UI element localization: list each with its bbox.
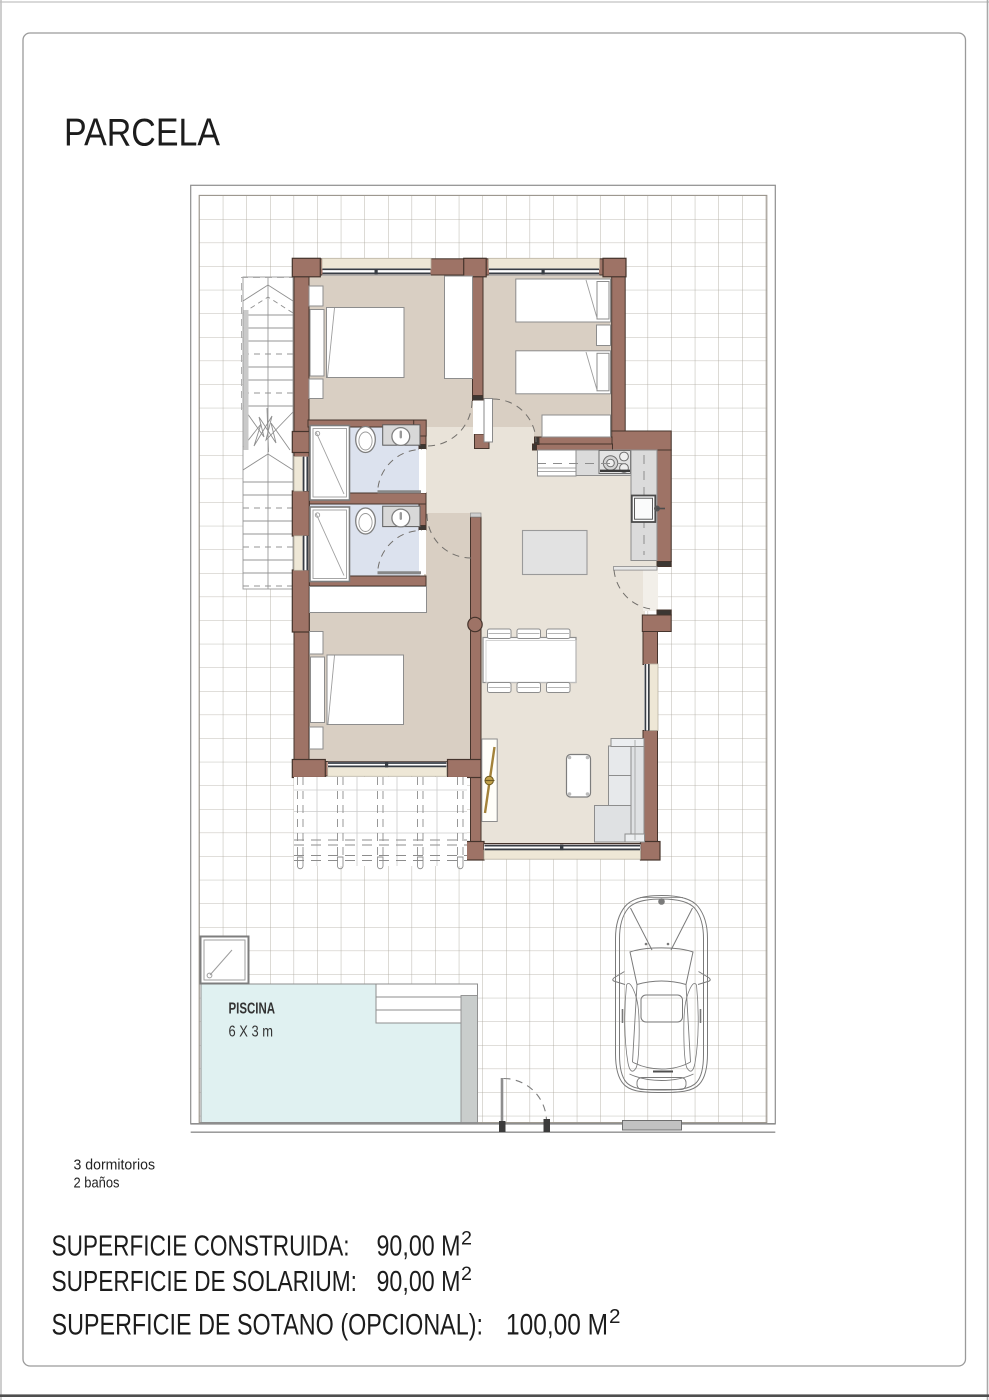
svg-text:2: 2 [461,1229,472,1250]
svg-text:90,00 M: 90,00 M [377,1266,461,1298]
svg-text:PISCINA: PISCINA [229,1001,276,1018]
svg-text:PARCELA: PARCELA [64,112,220,155]
svg-text:2 baños: 2 baños [74,1176,120,1192]
svg-text:6 X 3 m: 6 X 3 m [229,1024,274,1041]
svg-text:SUPERFICIE DE SOTANO (OPCIONAL: SUPERFICIE DE SOTANO (OPCIONAL): [52,1309,484,1342]
svg-text:100,00 M: 100,00 M [506,1309,608,1342]
svg-text:2: 2 [609,1306,621,1328]
svg-text:90,00 M: 90,00 M [377,1231,461,1263]
svg-text:2: 2 [461,1264,472,1285]
svg-text:SUPERFICIE DE SOLARIUM:: SUPERFICIE DE SOLARIUM: [52,1266,358,1298]
svg-text:3 dormitorios: 3 dormitorios [74,1158,156,1174]
svg-text:SUPERFICIE CONSTRUIDA:: SUPERFICIE CONSTRUIDA: [52,1231,350,1263]
